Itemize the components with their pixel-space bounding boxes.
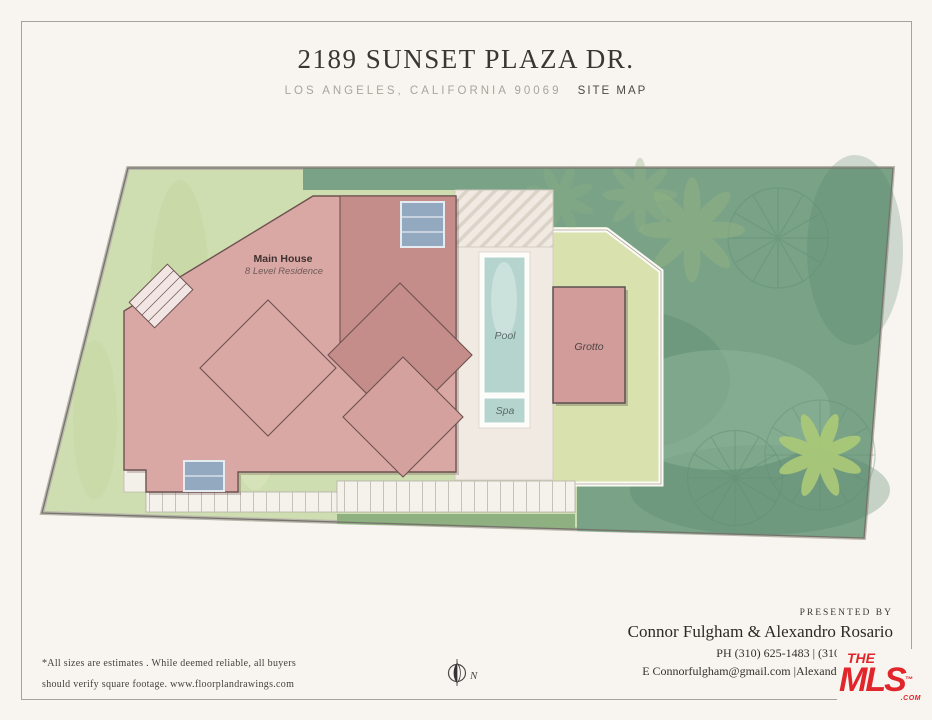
palm-plant-illustration [603,158,678,233]
disclaimer-line-1: *All sizes are estimates . While deemed … [42,653,296,674]
mls-logo-mls: MLS™ [839,665,927,695]
main-house-label: Main House [254,253,313,265]
roof-panel [401,202,444,247]
disclaimer: *All sizes are estimates . While deemed … [42,653,296,695]
main-house-sublabel: 8 Level Residence [245,266,323,277]
fan-palm-illustration [688,431,783,526]
mls-logo-trademark: ™ [905,675,913,684]
pool-label: Pool [494,330,516,342]
foliage-shading [807,155,903,345]
agent-names: Connor Fulgham & Alexandro Rosario [628,622,893,642]
roof-panel [184,461,224,491]
spa-label: Spa [496,405,515,417]
compass-north-label: N [469,670,478,682]
compass-north-icon [449,659,466,686]
deck-trellis-roof [455,190,553,247]
pool-water-highlight [491,262,517,338]
presented-by-label: PRESENTED BY [628,608,893,618]
fan-palm-illustration [728,188,828,288]
disclaimer-line-2: should verify square footage. www.floorp… [42,674,296,695]
walkway-step-lines [337,481,575,512]
grotto-label: Grotto [574,341,603,353]
entry-landing [124,470,146,492]
the-mls-logo: THE MLS™ .COM [837,649,927,715]
